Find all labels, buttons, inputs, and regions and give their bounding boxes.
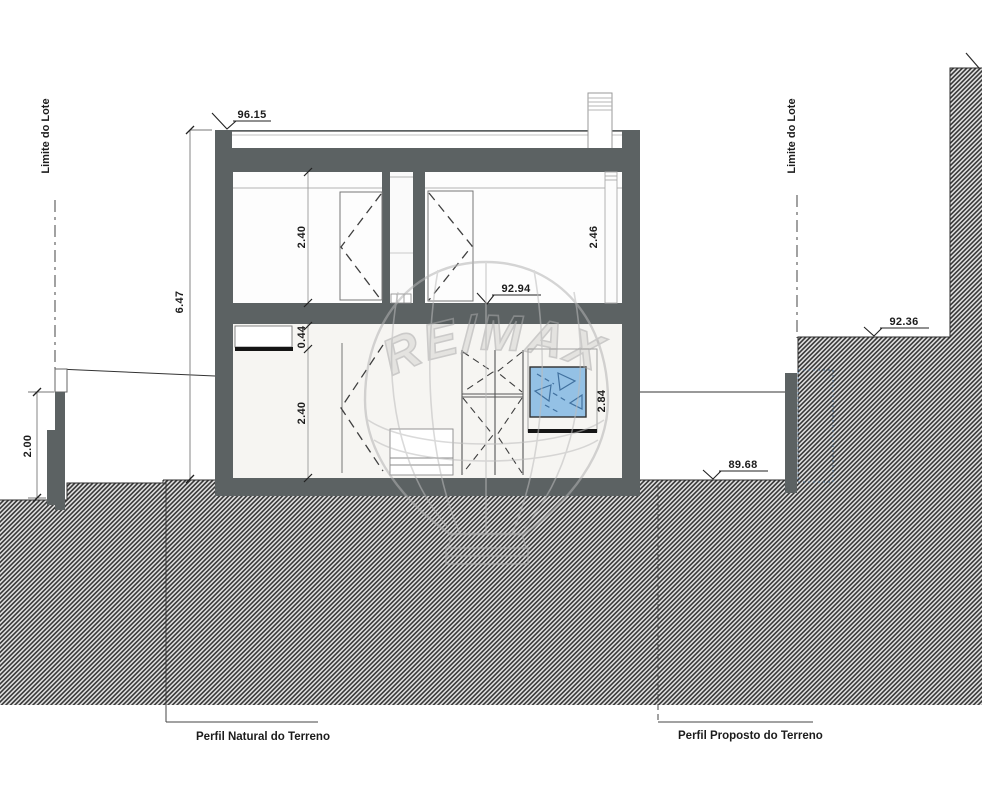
left-retaining-wall-footing (47, 430, 55, 505)
dim-beam-drop-label: 0.44 (296, 325, 308, 348)
upper-door-shaft (390, 172, 413, 303)
right-retaining-wall (785, 373, 797, 493)
natural-terrain-label: Perfil Natural do Terreno (196, 731, 330, 743)
left-retaining-wall (55, 392, 65, 510)
dim-total-height-label: 6.47 (174, 291, 186, 314)
ceiling-beam-drop (235, 326, 292, 347)
elevation-terrain-right-label: 92.36 (889, 316, 918, 328)
wardrobe-right (605, 172, 617, 303)
dim-upper-left-room-label: 2.40 (296, 226, 308, 249)
section-svg: 2.00 6.47 (0, 0, 982, 800)
dresser (390, 429, 453, 475)
lot-limit-left-label: Limite do Lote (40, 98, 52, 173)
dim-upper-right-room-label: 2.46 (588, 226, 600, 249)
chimney (588, 93, 612, 148)
dim-retaining-wall-label: 2.00 (22, 435, 34, 458)
elevation-roof-label: 96.15 (237, 109, 266, 121)
dim-window-opening-label: 2.84 (596, 389, 608, 412)
dim-ground-floor-label: 2.40 (296, 402, 308, 425)
proposed-terrain-label: Perfil Proposto do Terreno (678, 730, 823, 742)
lot-limit-right-label: Limite do Lote (786, 98, 798, 173)
left-wall-cap (55, 369, 67, 392)
roof-finish-band (232, 131, 622, 148)
elevation-terrain-base-label: 89.68 (728, 459, 757, 471)
elevation-upper-floor-label: 92.94 (501, 283, 531, 295)
architectural-section-drawing: 2.00 6.47 (0, 0, 982, 800)
